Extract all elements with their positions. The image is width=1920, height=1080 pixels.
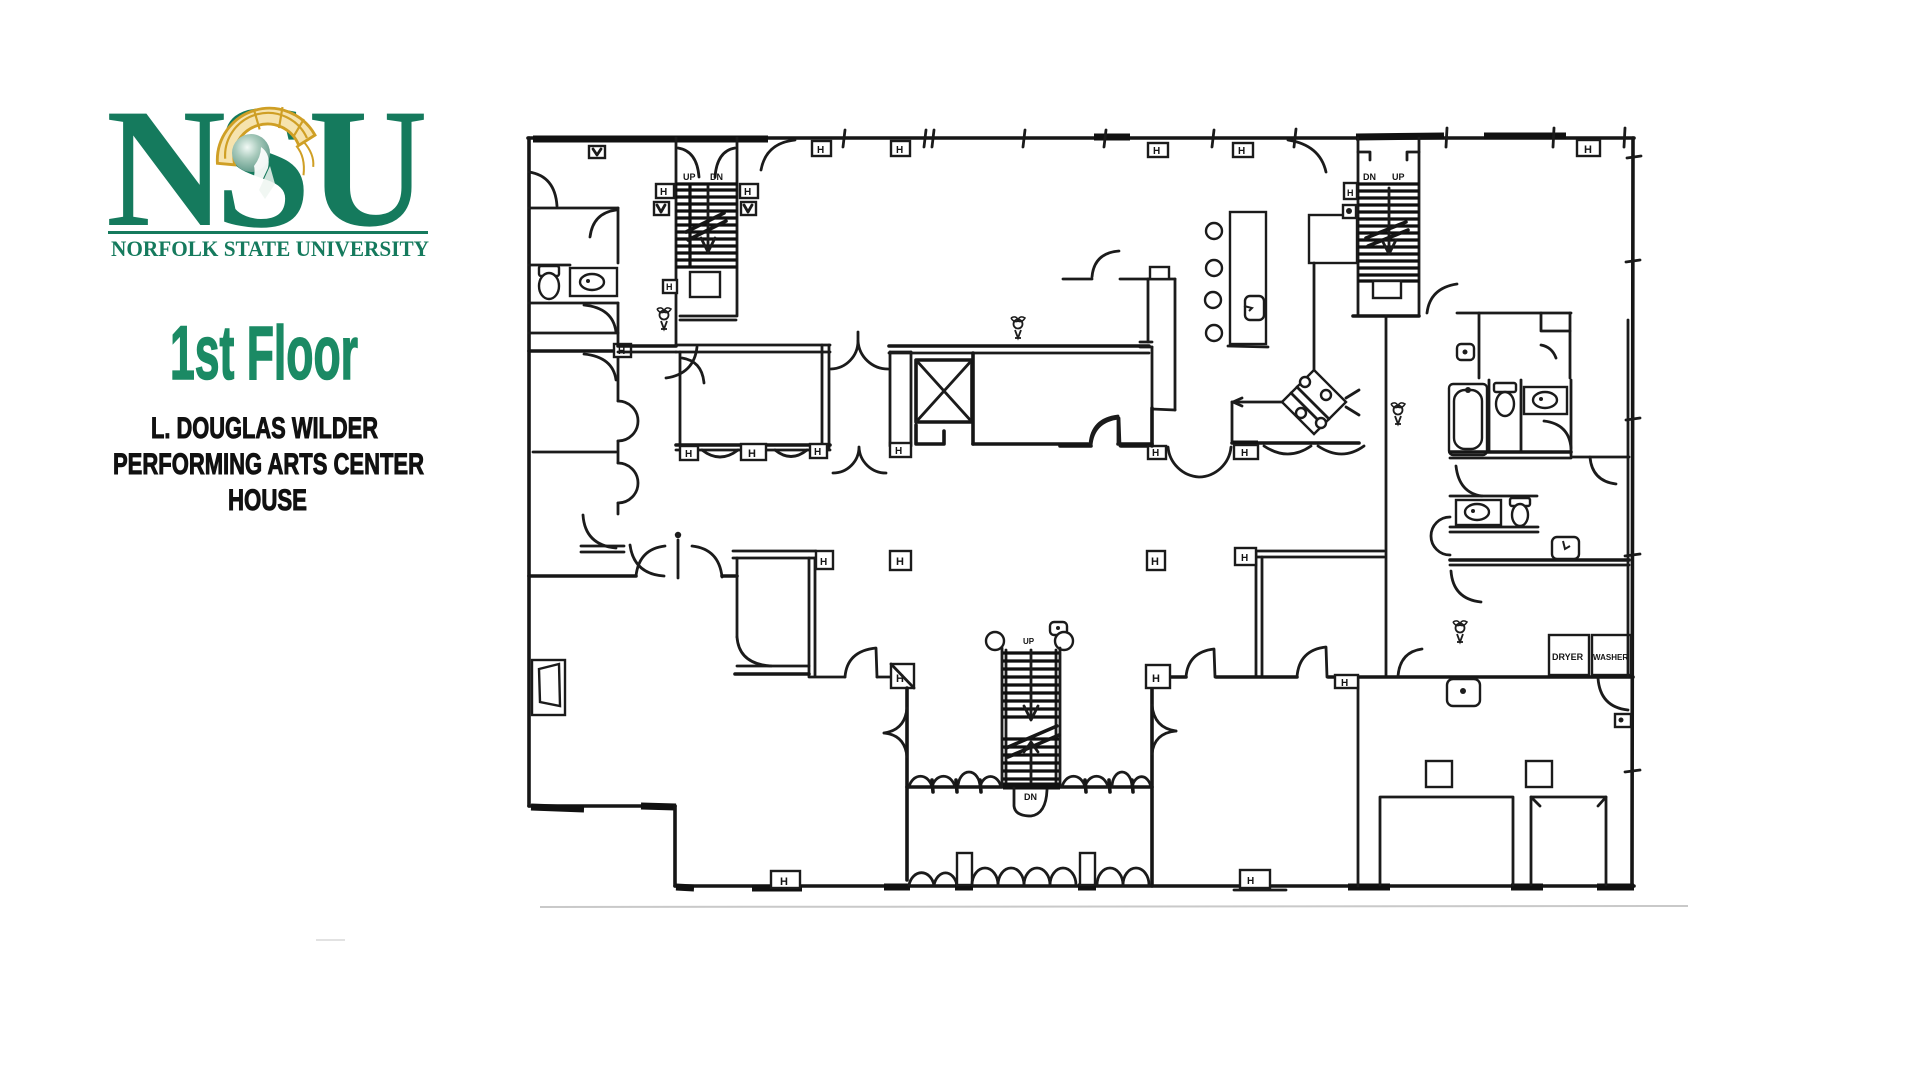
svg-text:DRYER: DRYER (1552, 652, 1584, 662)
svg-text:H: H (820, 557, 827, 568)
svg-text:WASHER: WASHER (1593, 653, 1628, 662)
svg-text:1st Floor: 1st Floor (170, 311, 358, 396)
svg-text:H: H (1247, 876, 1254, 887)
svg-text:H: H (1151, 556, 1159, 568)
svg-text:H: H (1152, 673, 1160, 685)
svg-text:H: H (896, 556, 904, 568)
svg-text:H: H (896, 145, 903, 156)
svg-text:H: H (1584, 144, 1592, 156)
svg-text:H: H (1153, 146, 1160, 157)
svg-text:H: H (666, 282, 673, 292)
svg-text:NORFOLK STATE UNIVERSITY: NORFOLK STATE UNIVERSITY (111, 236, 429, 261)
svg-text:H: H (1241, 553, 1248, 564)
svg-text:UP: UP (683, 172, 696, 182)
svg-text:DN: DN (710, 172, 723, 182)
svg-text:H: H (814, 447, 821, 458)
svg-text:H: H (685, 449, 692, 460)
svg-text:H: H (660, 187, 667, 198)
svg-text:H: H (1341, 678, 1348, 689)
svg-text:H: H (1238, 146, 1245, 157)
svg-text:UP: UP (1023, 637, 1035, 646)
svg-text:DN: DN (1363, 172, 1376, 182)
svg-text:H: H (744, 187, 751, 198)
svg-text:H: H (817, 145, 824, 156)
svg-text:HOUSE: HOUSE (228, 484, 307, 517)
svg-text:H: H (1241, 448, 1248, 459)
svg-text:H: H (748, 448, 756, 460)
svg-text:H: H (1347, 188, 1354, 198)
svg-text:UP: UP (1392, 172, 1405, 182)
svg-text:DN: DN (1024, 792, 1037, 802)
svg-text:L. DOUGLAS WILDER: L. DOUGLAS WILDER (151, 412, 378, 445)
svg-text:H: H (1152, 448, 1159, 459)
svg-text:H: H (780, 876, 788, 888)
svg-text:H: H (895, 446, 902, 457)
svg-text:PERFORMING ARTS CENTER: PERFORMING ARTS CENTER (113, 448, 424, 481)
